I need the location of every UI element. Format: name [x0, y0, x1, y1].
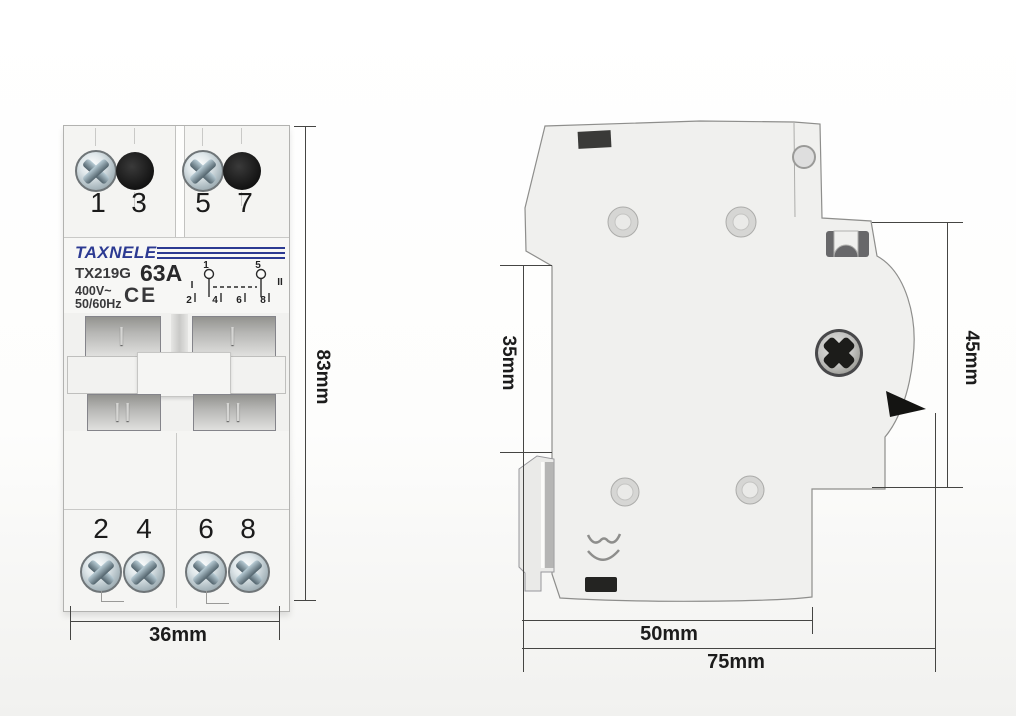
- lower-body: 2 4 6 8: [64, 431, 289, 611]
- dim-label-body-depth: 50mm: [599, 623, 739, 646]
- dim-label-total-depth: 75mm: [666, 651, 806, 674]
- position-mark-II: II: [114, 397, 134, 428]
- position-window-upper-right: I: [192, 316, 276, 357]
- frequency-label: 50/60Hz: [75, 297, 122, 311]
- mold-mark: [101, 591, 124, 602]
- position-window-upper-left: I: [85, 316, 161, 357]
- terminal-screw-5: [182, 150, 224, 192]
- dim-line-83: [305, 126, 306, 601]
- product-dimension-diagram: 1 3 5 7 TAXNELE TX219G 63A 400V~ 50/60Hz…: [0, 0, 1016, 716]
- dim-tick: [279, 606, 280, 640]
- module-gap: [175, 126, 185, 237]
- terminal-screw-6: [185, 551, 227, 593]
- position-window-lower-left: II: [87, 394, 161, 431]
- terminal-screw-8: [228, 551, 270, 593]
- position-mark-I: I: [118, 321, 128, 352]
- dim-line-45: [947, 222, 948, 488]
- mold-mark: [202, 128, 203, 146]
- dim-cap: [500, 265, 552, 266]
- dim-cap: [872, 222, 963, 223]
- dim-tick: [70, 606, 71, 640]
- dim-cap: [872, 487, 963, 488]
- position-mark-II: II: [224, 397, 244, 428]
- center-seam: [176, 433, 177, 608]
- diagram-terminal-8: 8: [260, 295, 266, 306]
- terminal-hole-3: [116, 152, 154, 190]
- center-post: [171, 314, 188, 356]
- phillips-screw: [815, 329, 863, 377]
- dim-cap: [294, 126, 316, 127]
- diagram-terminal-5: 5: [255, 260, 261, 271]
- switch-section: I I II II: [64, 313, 289, 431]
- mold-mark: [206, 591, 229, 604]
- diagram-terminal-1: 1: [203, 260, 209, 271]
- rating-plate: TAXNELE TX219G 63A 400V~ 50/60Hz CE: [64, 238, 289, 313]
- bottom-slot: [585, 577, 617, 592]
- mold-mark: [241, 128, 242, 144]
- terminal-number: 2: [84, 513, 118, 545]
- terminal-number: 7: [228, 187, 262, 219]
- rear-clip-notch: [826, 231, 869, 257]
- dim-label-rail: 35mm: [498, 331, 518, 395]
- terminal-number: 3: [122, 187, 156, 219]
- diagram-terminal-2: 2: [186, 295, 192, 306]
- terminal-number: 4: [127, 513, 161, 545]
- dim-cap: [500, 452, 552, 453]
- dim-label-width: 36mm: [108, 624, 248, 647]
- front-view: 1 3 5 7 TAXNELE TX219G 63A 400V~ 50/60Hz…: [63, 125, 290, 612]
- dim-line-36: [70, 621, 280, 622]
- dim-line-50: [522, 620, 813, 621]
- wiring-diagram: 1 5 I II 2 4 6 8: [182, 257, 288, 311]
- voltage-label: 400V~: [75, 284, 112, 298]
- terminal-screw-4: [123, 551, 165, 593]
- position-mark-I: I: [229, 321, 239, 352]
- dim-tick: [812, 607, 813, 634]
- terminal-number: 1: [81, 187, 115, 219]
- diagram-terminal-6: 6: [236, 295, 242, 306]
- side-view: [500, 100, 970, 680]
- terminal-screw-1: [75, 150, 117, 192]
- model-number: TX219G: [75, 265, 131, 282]
- diagram-position-I: I: [191, 280, 194, 291]
- diagram-terminal-4: 4: [212, 295, 218, 306]
- dim-ext-right: [935, 413, 936, 672]
- dim-line-35-ext: [523, 265, 524, 672]
- dim-cap: [294, 600, 316, 601]
- handle-recess: [793, 146, 815, 168]
- terminal-screw-2: [80, 551, 122, 593]
- dim-label-upper: 45mm: [961, 326, 981, 390]
- ce-mark: CE: [124, 284, 157, 308]
- din-rail-clip[interactable]: [519, 456, 554, 591]
- dim-line-75: [522, 648, 936, 649]
- dim-label-height: 83mm: [312, 345, 332, 409]
- top-vent-slot: [578, 130, 612, 149]
- mold-mark: [95, 128, 96, 146]
- slider-handle[interactable]: [137, 352, 231, 397]
- terminal-number: 5: [186, 187, 220, 219]
- current-rating: 63A: [140, 260, 182, 287]
- seam-line: [64, 509, 289, 510]
- terminal-number: 6: [189, 513, 223, 545]
- mold-mark: [134, 128, 135, 144]
- terminal-hole-7: [223, 152, 261, 190]
- diagram-position-II: II: [277, 277, 283, 288]
- position-window-lower-right: II: [193, 394, 276, 431]
- terminal-number: 8: [231, 513, 265, 545]
